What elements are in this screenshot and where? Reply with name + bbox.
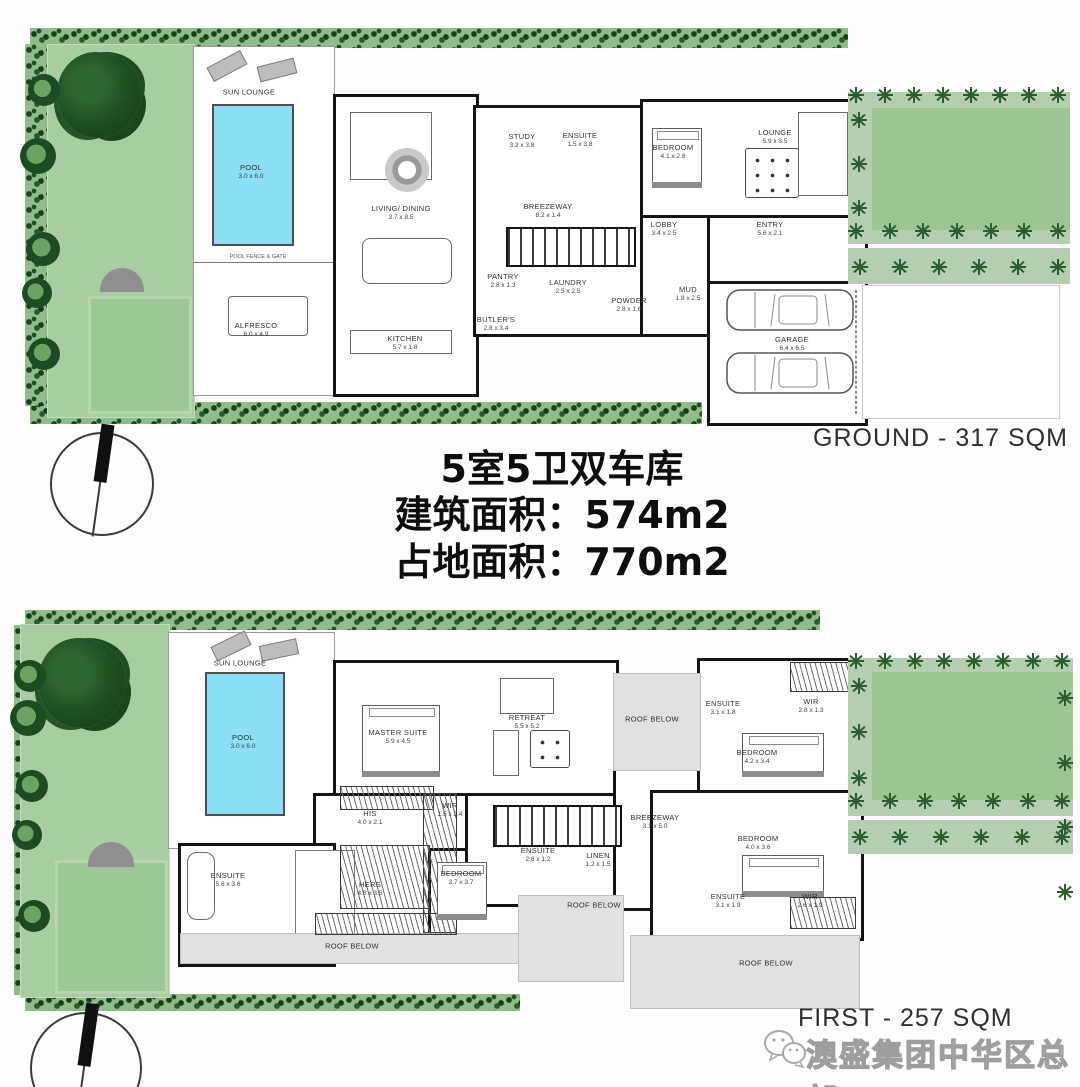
room-label-ensuite-tr: ENSUITE 3.1 x 1.8 — [706, 700, 741, 716]
north-compass — [50, 432, 150, 532]
room-label-mud: MUD 1.8 x 2.5 — [676, 286, 701, 302]
tree-icon — [16, 770, 48, 802]
room-label-pool: POOL 3.0 x 6.0 — [239, 164, 264, 180]
palm-tree-icon — [949, 223, 965, 239]
dining-table-icon — [362, 238, 452, 284]
room-label-kitchen: KITCHEN 5.7 x 1.8 — [387, 335, 422, 351]
first-caption: FIRST - 257 SQM — [798, 1004, 1013, 1033]
palm-tree-icon — [1020, 793, 1036, 809]
lounge-sofa-icon — [798, 112, 848, 196]
palm-trees-column — [850, 112, 868, 216]
palm-trees-row — [848, 652, 1070, 670]
room-label-laundry: LAUNDRY 2.5 x 2.5 — [549, 279, 587, 295]
garden-right-inner — [872, 672, 1073, 800]
room-label-roof-below-left: ROOF BELOW — [325, 943, 379, 952]
palm-trees-column — [1056, 690, 1074, 900]
title-line-1: 5室5卫双车库 — [372, 446, 752, 492]
palm-tree-icon — [852, 259, 868, 275]
palm-tree-icon — [848, 223, 864, 239]
palm-tree-icon — [848, 653, 864, 669]
palm-tree-icon — [971, 259, 987, 275]
title-line-2: 建筑面积：574m2 — [372, 492, 752, 538]
room-label-living-dining: LIVING/ DINING 3.7 x 8.5 — [371, 205, 430, 221]
room-label-ensuite-mid: ENSUITE 2.8 x 1.2 — [521, 847, 556, 863]
palm-tree-icon — [1025, 653, 1041, 669]
room-label-breezeway-first: BREEZEWAY 3.1 x 5.0 — [631, 814, 680, 830]
palm-trees-row — [848, 86, 1066, 104]
room-label-hers-robe: HERS 4.8 x 3.5 — [358, 881, 383, 897]
garden-lawn-lower — [88, 296, 192, 414]
palm-tree-icon — [985, 793, 1001, 809]
palm-tree-icon — [931, 259, 947, 275]
pool-fence-note: POOL FENCE & GATE — [230, 254, 287, 260]
room-label-bedroom-tr: BEDROOM 4.2 x 3.4 — [737, 749, 778, 765]
palm-tree-icon — [1057, 884, 1073, 900]
tree-icon — [22, 278, 52, 308]
round-rug-icon — [385, 148, 429, 192]
room-label-butlers: BUTLER'S 2.8 x 3.4 — [477, 316, 515, 332]
palm-tree-icon — [877, 87, 893, 103]
palm-trees-row — [848, 222, 1066, 240]
palm-tree-icon — [973, 829, 989, 845]
garage-door-line — [855, 290, 857, 414]
palm-tree-icon — [1057, 690, 1073, 706]
room-label-bedroom-ground: BEDROOM 4.1 x 2.8 — [653, 144, 694, 160]
palm-tree-icon — [1010, 259, 1026, 275]
room-label-pantry: PANTRY 2.8 x 1.3 — [487, 273, 519, 289]
title-block: 5室5卫双车库 建筑面积：574m2 占地面积：770m2 — [372, 446, 752, 585]
room-label-entry: ENTRY 5.6 x 2.1 — [757, 221, 784, 237]
room-label-roof-below-right: ROOF BELOW — [739, 960, 793, 969]
room-label-wir-tr: WIR 2.8 x 1.3 — [799, 698, 824, 714]
palm-tree-icon — [966, 653, 982, 669]
palm-tree-icon — [983, 223, 999, 239]
tree-icon — [14, 660, 46, 692]
palm-tree-icon — [936, 653, 952, 669]
palm-tree-icon — [851, 724, 867, 740]
palm-tree-icon — [851, 156, 867, 172]
wir-hatch — [790, 662, 852, 692]
palm-tree-icon — [1057, 755, 1073, 771]
corner-sofa-icon — [493, 730, 519, 776]
bed-icon — [742, 855, 824, 897]
room-label-sun-lounge: SUN LOUNGE — [223, 89, 276, 98]
tree-icon — [28, 74, 60, 106]
ottoman-grid-icon — [530, 730, 570, 768]
room-label-pool: POOL 3.0 x 6.0 — [231, 734, 256, 750]
room-label-linen: LINEN 1.2 x 1.5 — [586, 852, 611, 868]
palm-tree-icon — [951, 793, 967, 809]
palm-tree-icon — [882, 793, 898, 809]
first-floor-plan: SUN LOUNGE POOL 3.0 x 6.0 — [0, 600, 1080, 1087]
room-label-wir-left: WIR 1.5 x 2.4 — [438, 802, 463, 818]
ground-caption: GROUND - 317 SQM — [813, 424, 1068, 453]
tree-icon — [26, 232, 60, 266]
palm-tree-icon — [851, 770, 867, 786]
room-label-ensuite-br: ENSUITE 3.1 x 1.9 — [711, 893, 746, 909]
north-compass — [30, 1012, 138, 1087]
palm-tree-icon — [852, 829, 868, 845]
palm-tree-icon — [1050, 259, 1066, 275]
tree-icon — [10, 700, 46, 736]
room-label-lobby: LOBBY 3.4 x 2.5 — [651, 221, 678, 237]
palm-tree-icon — [892, 829, 908, 845]
room-label-bedroom-br: BEDROOM 4.0 x 3.6 — [738, 835, 779, 851]
ottoman-grid-icon — [745, 148, 799, 198]
room-label-roof-below-top: ROOF BELOW — [625, 716, 679, 725]
palm-trees-row — [852, 258, 1066, 276]
floor-plan-sheet: SUN LOUNGE POOL 3.0 x 6.0 POOL FENCE & G… — [0, 0, 1080, 1087]
tree-icon — [18, 900, 50, 932]
robe-hatch — [315, 913, 457, 935]
wechat-logo-icon — [762, 1028, 808, 1070]
palm-tree-icon — [1054, 653, 1070, 669]
palm-tree-icon — [851, 200, 867, 216]
room-label-garage: GARAGE 6.4 x 6.5 — [775, 336, 809, 352]
room-label-retreat: RETREAT 5.5 x 5.2 — [509, 714, 546, 730]
palm-tree-icon — [915, 223, 931, 239]
palm-trees-column — [850, 678, 868, 786]
palm-tree-icon — [1050, 87, 1066, 103]
palm-tree-icon — [906, 87, 922, 103]
palm-tree-icon — [882, 223, 898, 239]
garden-right-inner — [872, 108, 1070, 230]
palm-tree-icon — [892, 259, 908, 275]
title-line-3: 占地面积：770m2 — [372, 539, 752, 585]
palm-tree-icon — [963, 87, 979, 103]
room-label-roof-below-mid: ROOF BELOW — [567, 902, 621, 911]
robe-hatch — [340, 786, 434, 810]
palm-tree-icon — [1014, 829, 1030, 845]
room-label-bedroom3: BEDROOM 3.7 x 3.7 — [441, 870, 482, 886]
palm-tree-icon — [877, 653, 893, 669]
palm-tree-icon — [1021, 87, 1037, 103]
palm-tree-icon — [851, 678, 867, 694]
wing-entry — [707, 215, 868, 287]
palm-tree-icon — [992, 87, 1008, 103]
ground-floor-plan: SUN LOUNGE POOL 3.0 x 6.0 POOL FENCE & G… — [0, 0, 1080, 460]
driveway — [862, 285, 1060, 419]
watermark-brand: 澳盛集团中华区总部 — [806, 1030, 1080, 1087]
palm-tree-icon — [848, 793, 864, 809]
pool-fence-line — [193, 262, 333, 263]
staircase — [493, 805, 622, 847]
tree-icon — [28, 338, 60, 370]
palm-tree-icon — [1050, 223, 1066, 239]
car-icon — [725, 287, 855, 333]
staircase — [506, 227, 636, 267]
garden-lawn-lower — [55, 860, 168, 994]
palm-tree-icon — [933, 829, 949, 845]
room-label-his-robe: HIS 4.0 x 2.1 — [358, 810, 383, 826]
roof-below-right — [630, 935, 860, 1009]
palm-tree-icon — [1016, 223, 1032, 239]
room-label-alfresco: ALFRESCO 6.0 x 4.9 — [235, 322, 278, 338]
room-label-study: STUDY 3.2 x 3.8 — [509, 133, 536, 149]
room-label-powder: POWDER 2.8 x 1.6 — [611, 297, 647, 313]
palm-tree-icon — [848, 87, 864, 103]
room-label-wir-br: WIR 2.6 x 1.9 — [798, 893, 823, 909]
car-icon — [725, 350, 855, 396]
room-label-breezeway-ground: BREEZEWAY 8.2 x 1.4 — [524, 203, 573, 219]
tree-icon — [12, 820, 42, 850]
palm-trees-row — [848, 792, 1070, 810]
palm-tree-icon — [851, 112, 867, 128]
palm-tree-icon — [907, 653, 923, 669]
palm-tree-icon — [1057, 819, 1073, 835]
palm-tree-icon — [935, 87, 951, 103]
robe-hatch — [340, 845, 430, 909]
daybed-icon — [500, 678, 554, 714]
room-label-ensuite-ground: ENSUITE 1.5 x 3.8 — [563, 132, 598, 148]
room-label-master-ensuite: ENSUITE 5.6 x 3.6 — [211, 872, 246, 888]
palm-tree-icon — [995, 653, 1011, 669]
palm-tree-icon — [917, 793, 933, 809]
tree-icon — [20, 138, 56, 174]
room-label-master-suite: MASTER SUITE 5.9 x 4.5 — [368, 729, 427, 745]
palm-trees-row — [852, 828, 1070, 846]
room-label-sun-lounge: SUN LOUNGE — [214, 660, 267, 669]
room-label-lounge: LOUNGE 5.9 x 3.5 — [758, 129, 791, 145]
